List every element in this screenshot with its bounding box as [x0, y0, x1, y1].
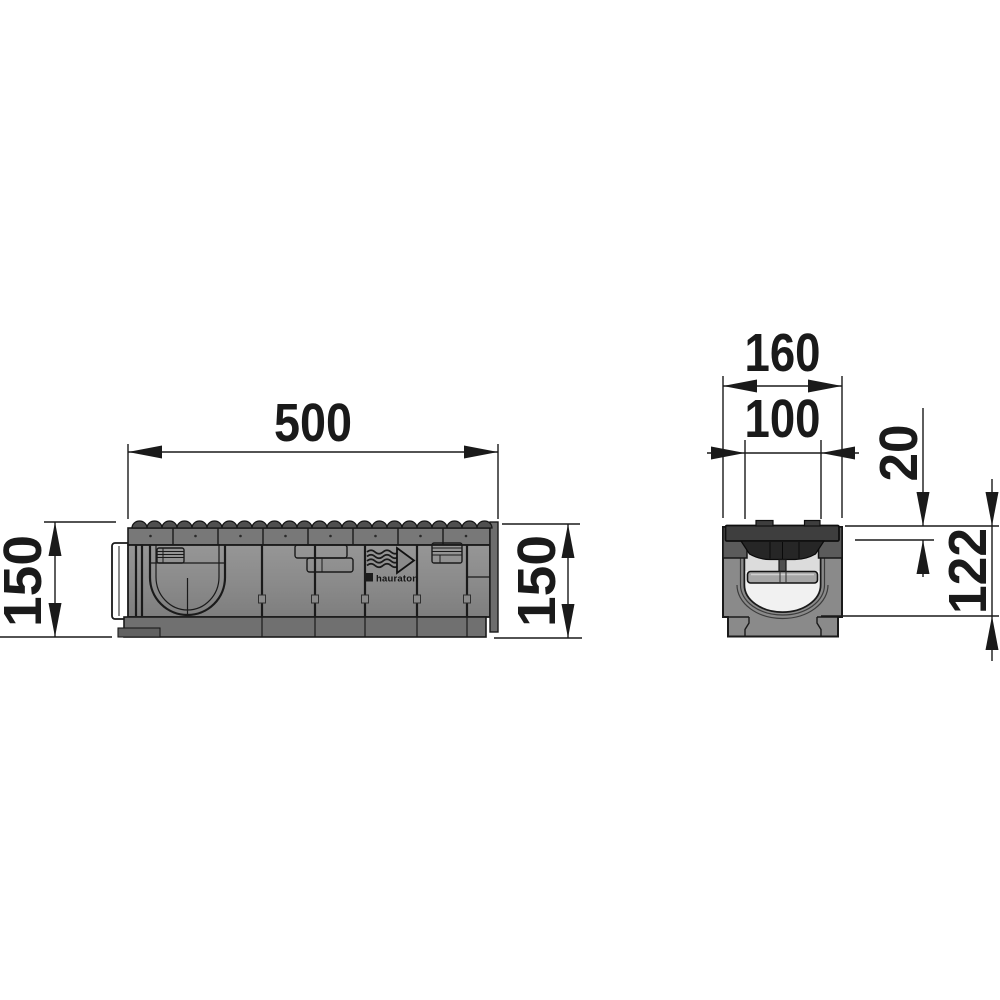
dimension-100: 100: [707, 389, 859, 519]
hauraton-logo-icon: [365, 573, 373, 582]
dim-height-left-text: 150: [0, 535, 53, 627]
dim-grate-height-text: 20: [869, 425, 929, 482]
dim-length-text: 500: [274, 393, 352, 453]
brand-text: hauraton: [376, 574, 418, 585]
dim-channel-depth-text: 122: [938, 528, 998, 614]
dimension-20: 20: [869, 408, 930, 577]
dimension-arrowhead: [821, 447, 855, 460]
cross-section-view: 160 100 20 12: [707, 323, 999, 661]
end-profile-right: [490, 522, 498, 632]
bottom-foot-notch: [118, 628, 160, 637]
dimension-arrowhead: [986, 616, 999, 650]
grate-tab: [805, 521, 821, 527]
dim-overall-width-text: 160: [745, 323, 821, 383]
dimension-arrowhead: [464, 446, 498, 459]
dimension-arrowhead: [917, 492, 930, 526]
dimension-arrowhead: [128, 446, 162, 459]
grate-top-scallops: [132, 521, 492, 528]
bottom-rail: [124, 617, 486, 637]
drainage-channel-drawing: hauraton 500 150 150: [0, 0, 1000, 1000]
dimension-150-left: 150: [0, 522, 116, 637]
locking-bar: [748, 572, 818, 584]
dimension-arrowhead: [917, 540, 930, 574]
dimension-arrowhead: [711, 447, 745, 460]
technical-drawing-page: hauraton 500 150 150: [0, 0, 1000, 1000]
dimension-150-right: 150: [494, 524, 582, 638]
side-view: hauraton 500 150 150: [0, 393, 582, 638]
grate-stem: [779, 560, 786, 572]
dim-clear-width-text: 100: [745, 389, 821, 449]
dimension-arrowhead: [986, 492, 999, 526]
dim-height-right-text: 150: [507, 535, 567, 627]
dimension-500: 500: [128, 393, 498, 519]
dimension-122: 122: [938, 479, 999, 661]
grate-tab: [756, 521, 773, 527]
channel-body: [128, 545, 490, 617]
